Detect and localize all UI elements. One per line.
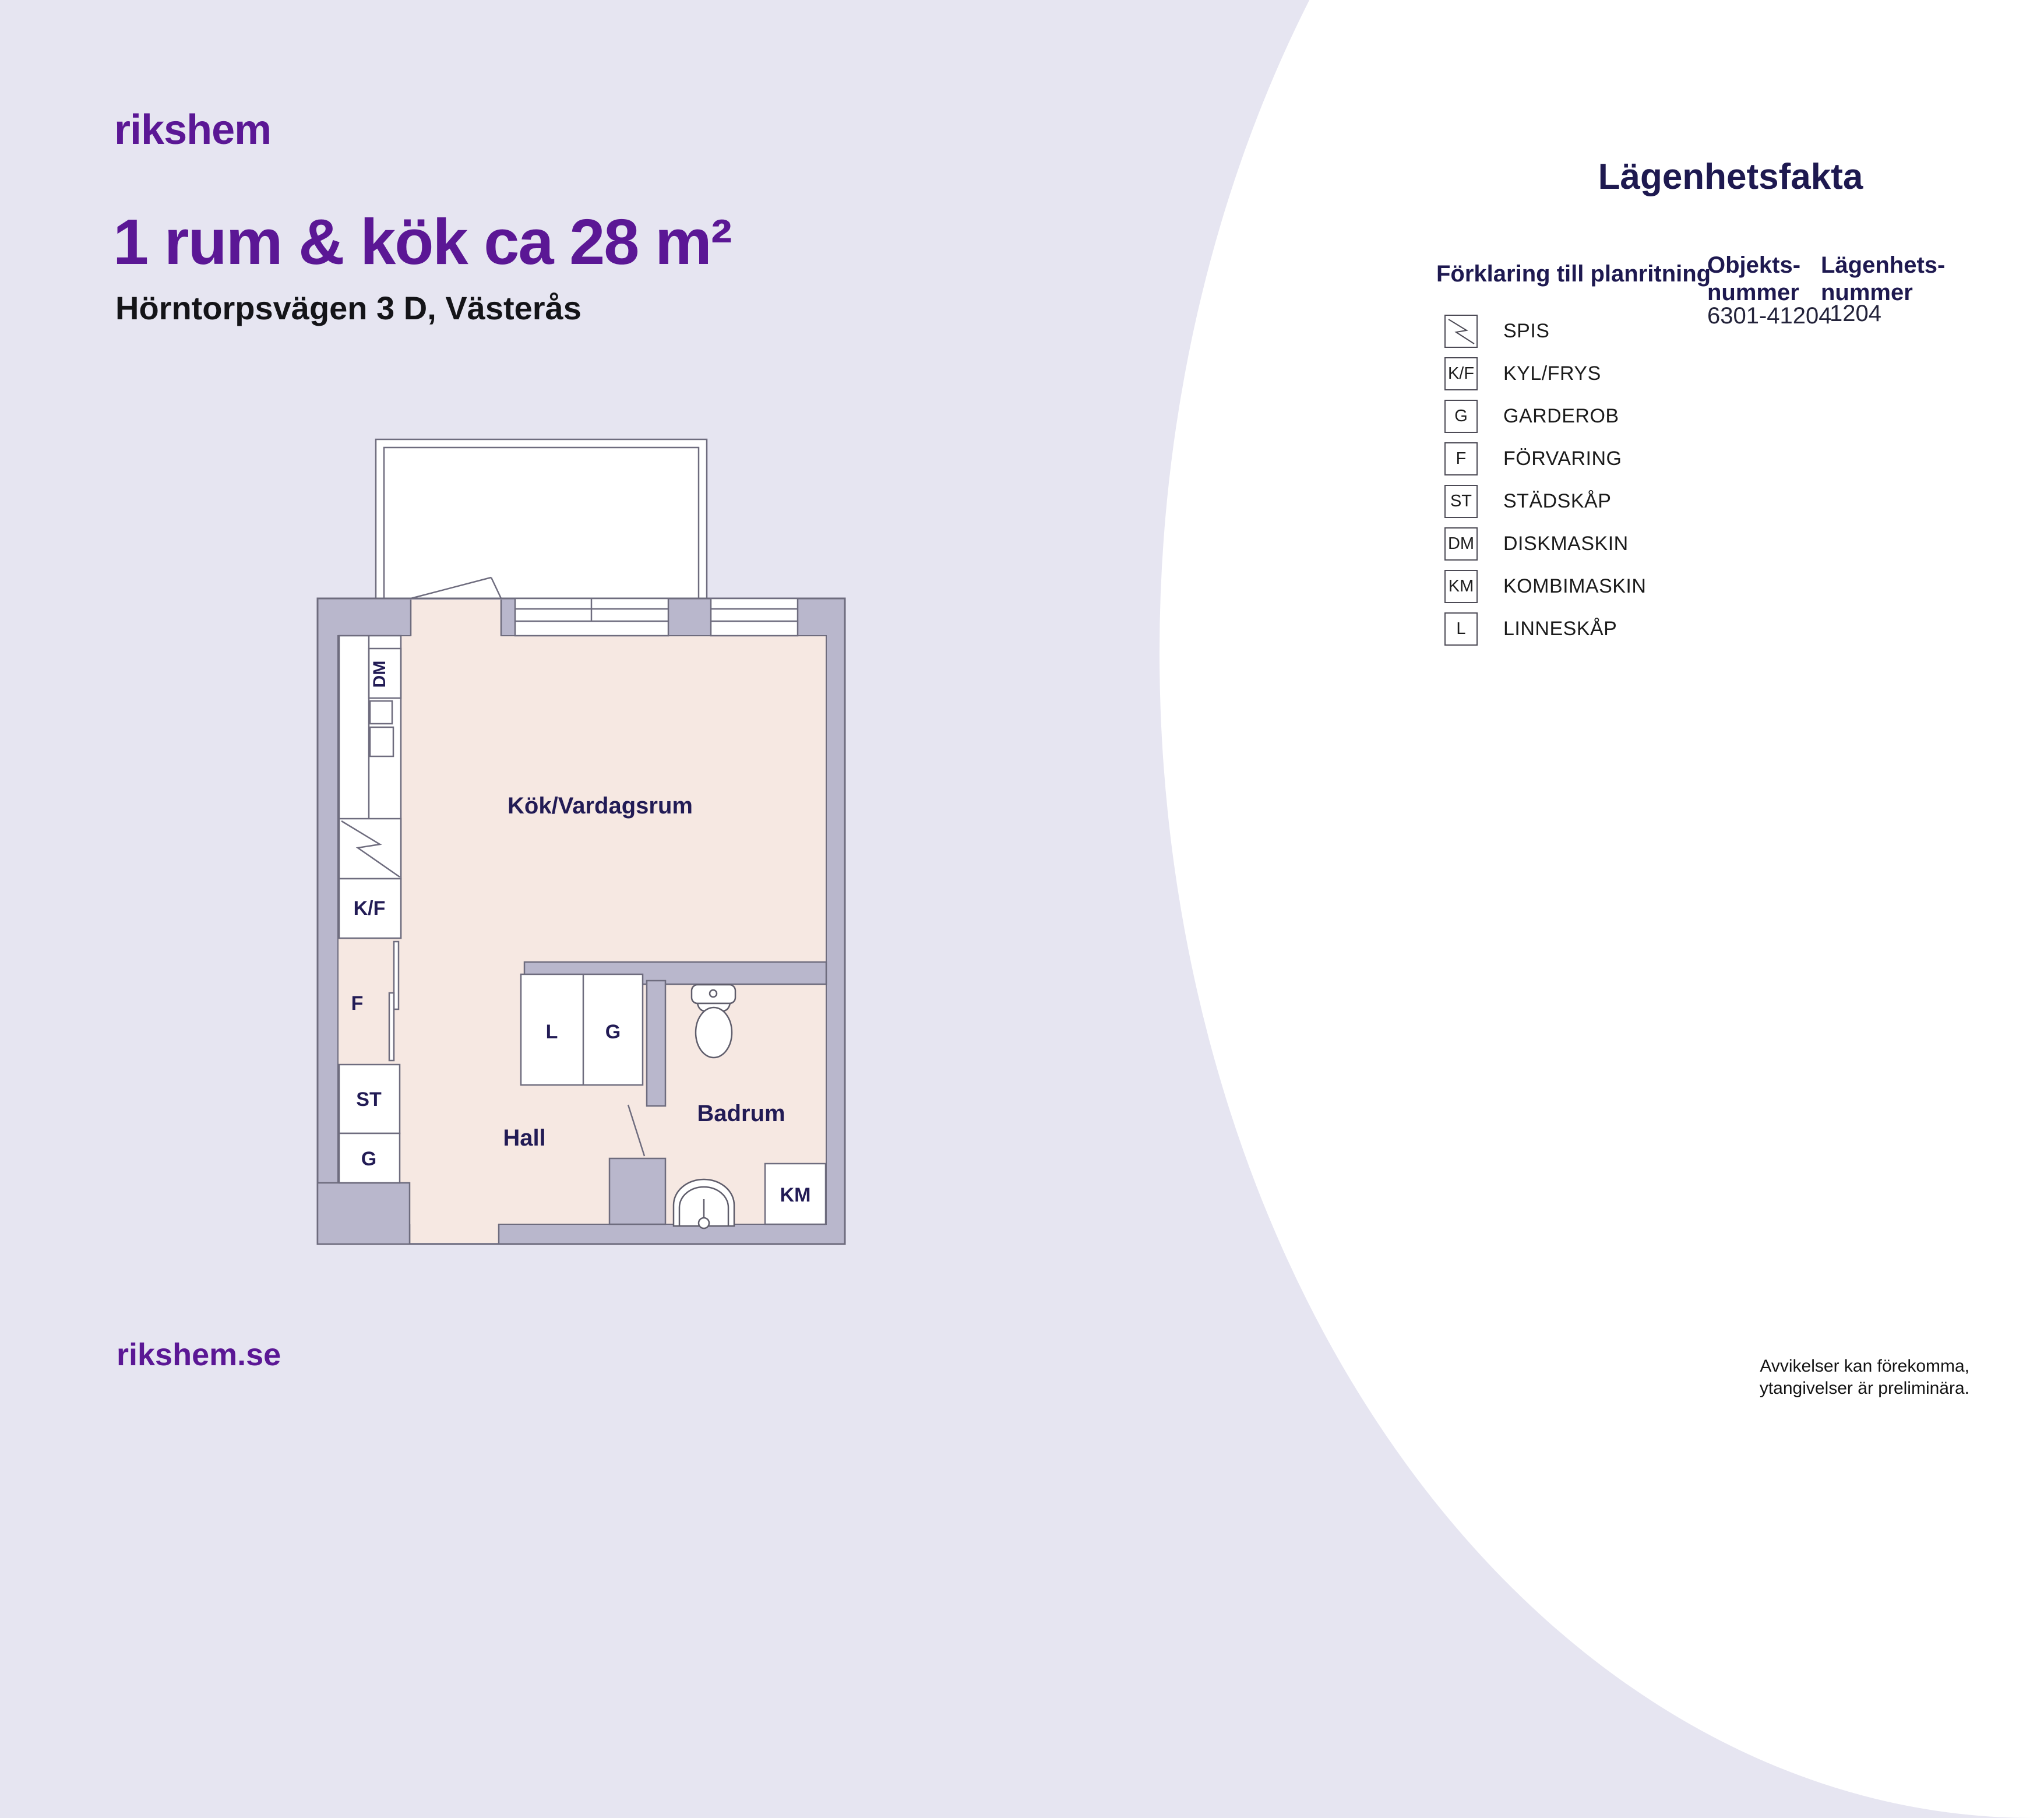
footer-url: rikshem.se [117, 1337, 281, 1373]
page: { "page": { "logo": "rikshem", "title": … [0, 0, 2044, 1445]
apartment-number-label: Lägenhets- nummer [1821, 252, 1945, 306]
l-box-icon: L [1444, 612, 1478, 646]
kf-box-icon: K/F [1444, 357, 1478, 390]
legend-row-km: KM KOMBIMASKIN [1444, 570, 1646, 603]
page-subtitle: Hörntorpsvägen 3 D, Västerås [115, 289, 582, 327]
wall-block-bottom-left [318, 1183, 410, 1244]
dm-box-icon: DM [1444, 527, 1478, 561]
legend-row-l: L LINNESKÅP [1444, 612, 1617, 646]
room-label-hall: Hall [503, 1125, 545, 1151]
marker-g2: G [605, 1021, 621, 1043]
legend: SPIS K/F KYL/FRYS G GARDEROB F FÖRVARING… [1444, 315, 1794, 676]
st-box-icon: ST [1444, 485, 1478, 518]
apartment-number-value: 1204 [1830, 301, 1881, 327]
marker-kf: K/F [354, 897, 386, 919]
sink-icon [674, 1179, 734, 1228]
legend-heading: Förklaring till planritning [1436, 261, 1711, 287]
legend-row-st: ST STÄDSKÅP [1444, 485, 1611, 518]
marker-g: G [361, 1148, 376, 1170]
entrance-door-opening [410, 1223, 498, 1243]
legend-row-g: G GARDEROB [1444, 400, 1619, 433]
floorplan: Kök/Vardagsrum Hall Badrum DM K/F F ST G… [291, 408, 886, 1282]
window-left [515, 598, 668, 636]
facts-heading: Lägenhetsfakta [1550, 156, 1911, 198]
legend-row-dm: DM DISKMASKIN [1444, 527, 1629, 561]
window-right [711, 598, 798, 636]
interior-floor [338, 636, 826, 1224]
marker-l: L [546, 1021, 558, 1043]
legend-row-f: F FÖRVARING [1444, 442, 1622, 475]
bathroom-wall-step [609, 1158, 665, 1224]
page-title: 1 rum & kök ca 28 m² [113, 205, 731, 279]
legend-row-kf: K/F KYL/FRYS [1444, 357, 1601, 390]
km-box-icon: KM [1444, 570, 1478, 603]
linen-wardrobe-closets [521, 974, 643, 1085]
rikshem-logo: rikshem [114, 106, 271, 154]
marker-f: F [351, 992, 364, 1014]
f-box-icon: F [1444, 442, 1478, 475]
disclaimer: Avvikelser kan förekomma, ytangivelser ä… [1719, 1355, 1969, 1399]
stove-spis [339, 819, 401, 879]
legend-row-spis: SPIS [1444, 315, 1549, 348]
balcony-inner-railing [384, 448, 699, 600]
room-label-bathroom: Badrum [697, 1101, 785, 1126]
marker-km: KM [780, 1184, 811, 1206]
storage-sliding-door-2 [389, 993, 394, 1060]
marker-st: ST [356, 1088, 382, 1111]
marker-dm: DM [370, 661, 389, 688]
bathroom-wall [647, 981, 665, 1106]
balcony-door-opening [411, 600, 501, 637]
toilet-icon [692, 985, 735, 1058]
g-box-icon: G [1444, 400, 1478, 433]
room-label-main: Kök/Vardagsrum [508, 793, 693, 819]
object-number-label: Objekts- nummer [1707, 252, 1800, 306]
spis-zigzag-icon [1444, 315, 1478, 348]
